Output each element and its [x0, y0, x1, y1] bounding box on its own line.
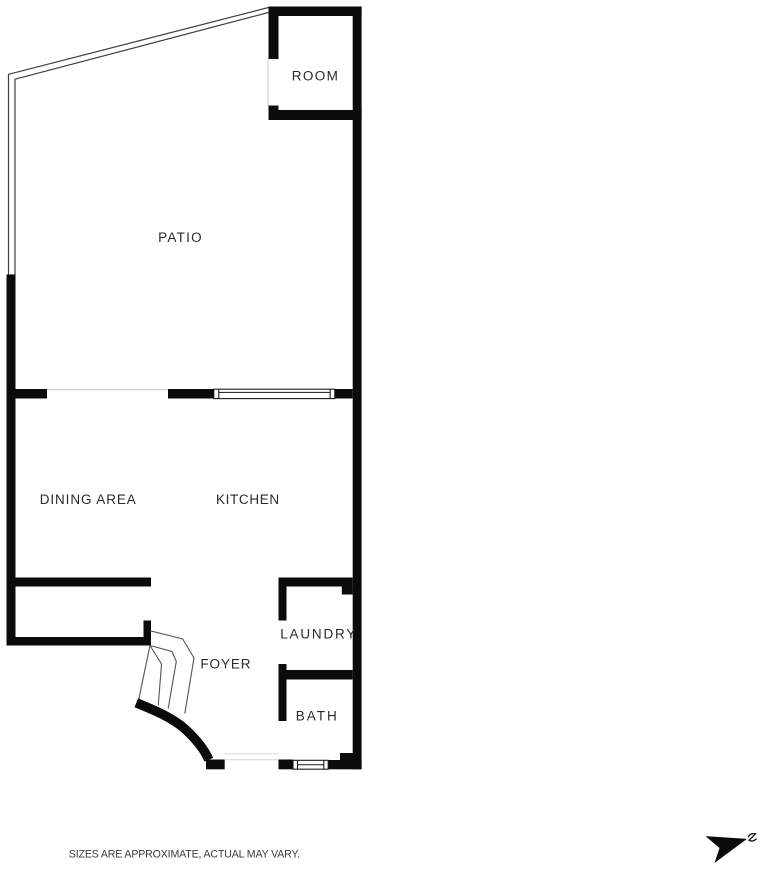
- svg-text:BATH: BATH: [296, 708, 339, 723]
- svg-text:SIZES ARE APPROXIMATE, ACTUAL: SIZES ARE APPROXIMATE, ACTUAL MAY VARY.: [69, 848, 300, 860]
- svg-text:KITCHEN: KITCHEN: [216, 492, 280, 507]
- svg-text:LAUNDRY: LAUNDRY: [280, 627, 357, 642]
- svg-text:FOYER: FOYER: [200, 657, 251, 672]
- svg-text:ROOM: ROOM: [292, 69, 339, 84]
- svg-text:PATIO: PATIO: [158, 230, 203, 245]
- svg-text:DINING AREA: DINING AREA: [40, 492, 137, 507]
